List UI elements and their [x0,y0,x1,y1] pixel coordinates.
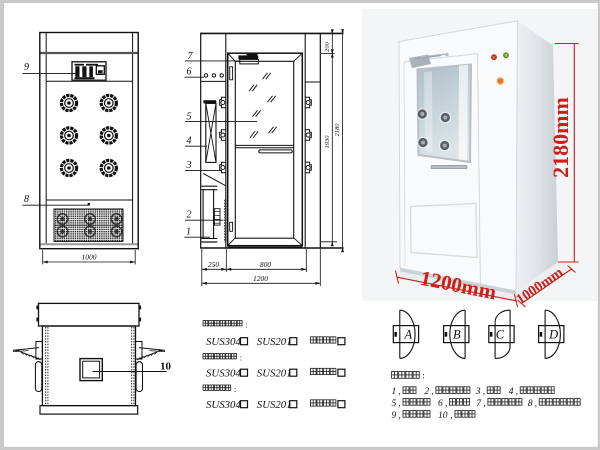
svg-text:1000: 1000 [82,252,97,261]
svg-text:5: 5 [187,112,192,123]
svg-text:10: 10 [438,411,448,421]
svg-text:9: 9 [24,62,29,73]
svg-text:,: , [399,398,401,408]
svg-text:A: A [403,328,412,342]
svg-text:,: , [431,386,433,396]
svg-text:,: , [451,410,453,420]
svg-text:SUS304: SUS304 [206,336,241,348]
svg-text:800: 800 [260,260,272,269]
svg-text:4: 4 [509,387,514,397]
svg-text:C: C [496,328,505,342]
svg-text:7: 7 [476,399,482,409]
svg-text:1930: 1930 [324,135,331,149]
svg-text:D: D [548,328,558,342]
svg-text:9: 9 [392,411,397,421]
svg-text:,: , [445,398,447,408]
svg-text:SUS304: SUS304 [206,368,241,380]
svg-text:3: 3 [475,387,481,397]
svg-text::: : [240,354,242,363]
svg-text:SUS201: SUS201 [257,336,292,348]
svg-text:8: 8 [528,399,533,409]
svg-text:1: 1 [186,227,191,238]
svg-text:3: 3 [186,160,192,171]
svg-text:4: 4 [187,136,192,147]
svg-text:2180mm: 2180mm [548,97,573,178]
svg-text:,: , [516,386,518,396]
svg-text:250: 250 [208,260,220,269]
svg-text:SUS201: SUS201 [257,399,292,411]
svg-text:,: , [535,398,537,408]
svg-text::: : [422,371,425,381]
svg-text:,: , [483,398,485,408]
svg-text:6: 6 [187,67,192,78]
svg-text::: : [245,321,247,330]
svg-text:SUS201: SUS201 [257,368,292,380]
svg-text:,: , [483,386,485,396]
svg-text:200: 200 [324,41,331,52]
svg-text:,: , [399,386,401,396]
svg-text:,: , [399,410,401,420]
svg-text:5: 5 [392,399,397,409]
svg-text:2180: 2180 [334,123,341,137]
svg-text:SUS304: SUS304 [206,399,241,411]
svg-text:6: 6 [438,399,443,409]
svg-text:1200: 1200 [253,274,268,283]
svg-text:2: 2 [424,387,429,397]
svg-text:B: B [453,328,461,342]
svg-text::: : [234,385,236,394]
svg-text:2: 2 [187,210,192,221]
svg-text:1: 1 [392,387,397,397]
svg-text:8: 8 [24,194,29,205]
svg-text:10: 10 [160,360,172,372]
